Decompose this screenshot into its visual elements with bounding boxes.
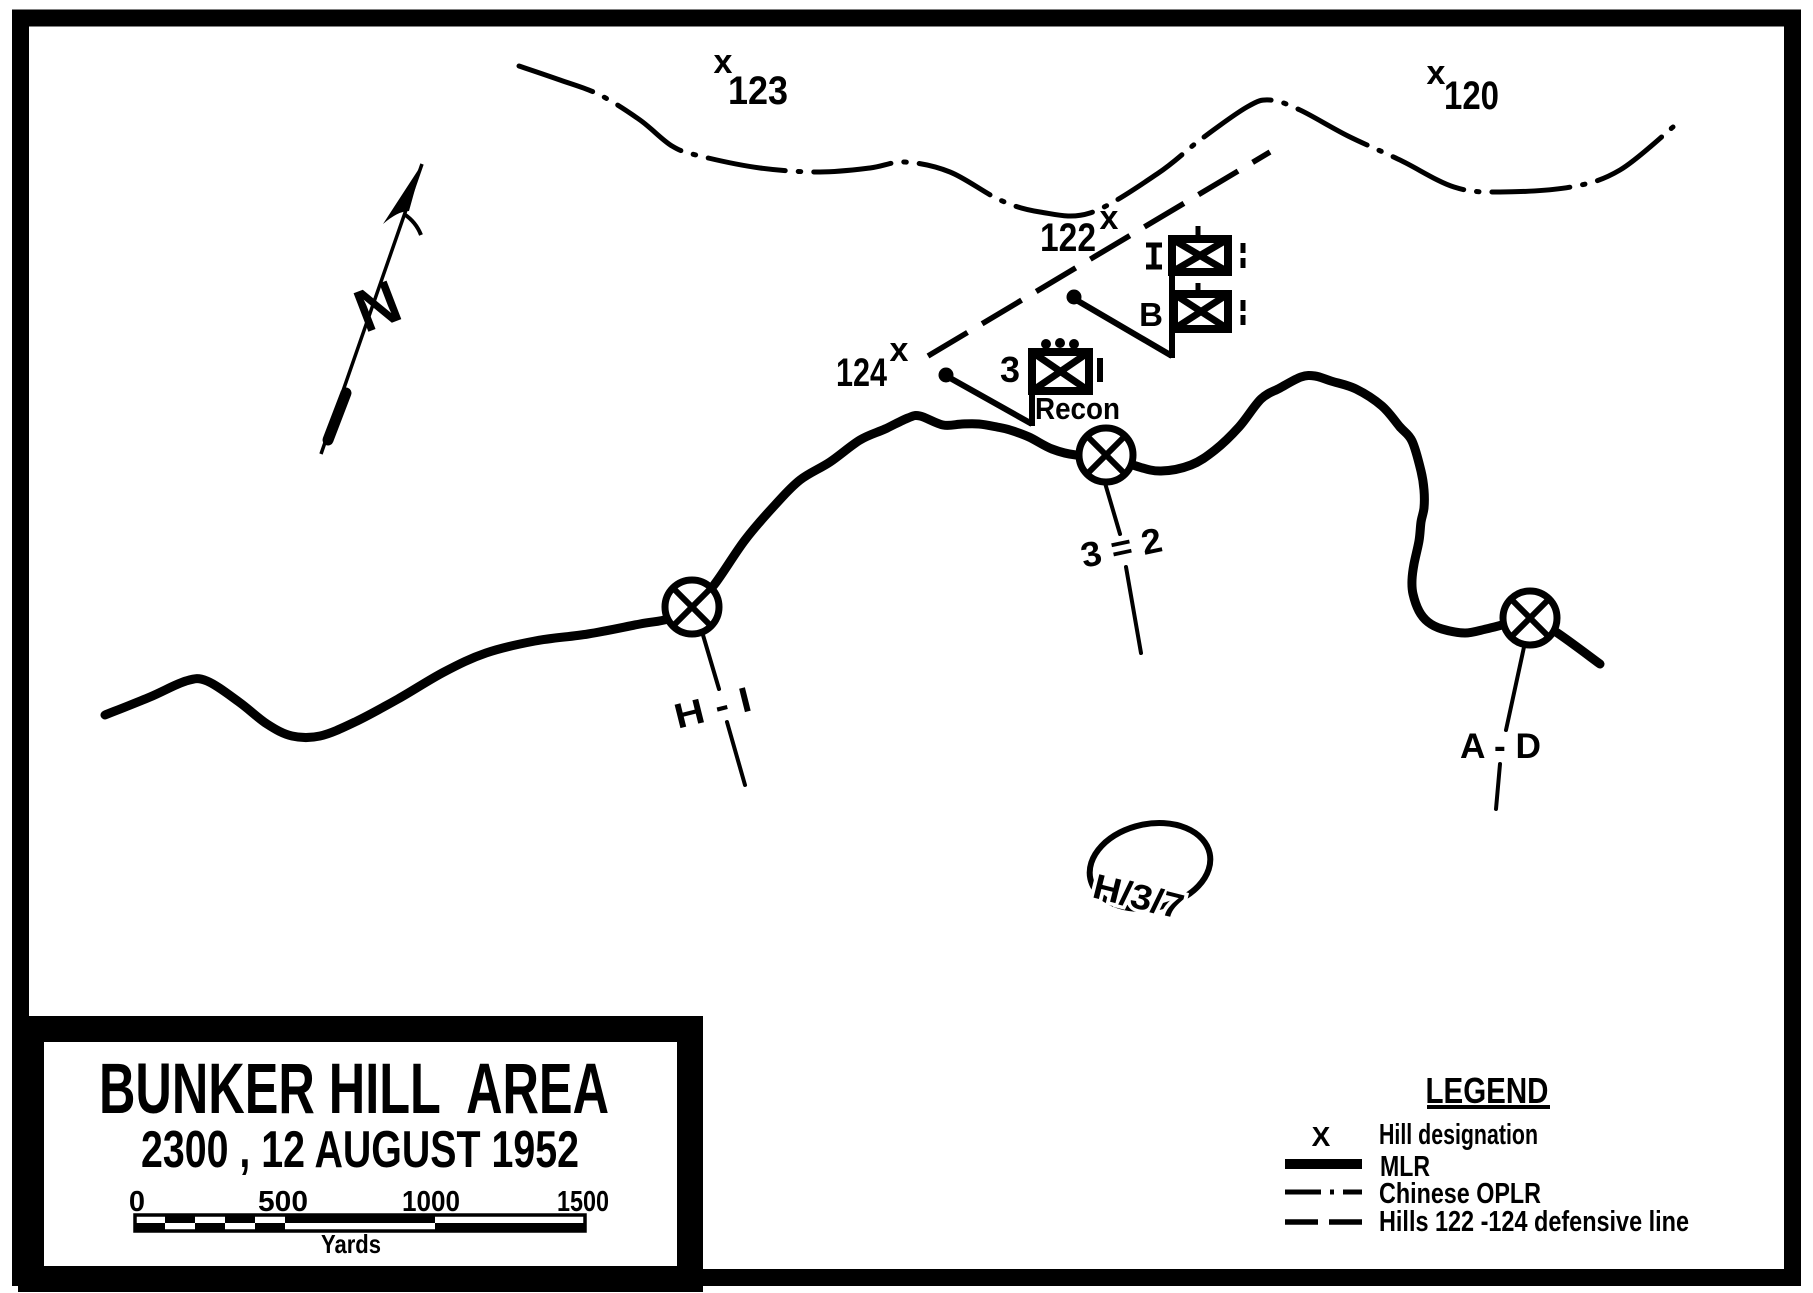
svg-text:B: B [1139,296,1163,333]
svg-text:x: x [1100,199,1119,237]
svg-text:122: 122 [1040,216,1096,260]
svg-text:Hills 122 -124 defensive line: Hills 122 -124 defensive line [1379,1206,1689,1238]
svg-text:1000: 1000 [402,1186,460,1218]
svg-text:A - D: A - D [1460,727,1541,766]
svg-text:x: x [890,331,909,369]
svg-text:Hill designation: Hill designation [1379,1119,1538,1151]
svg-text:1500: 1500 [557,1186,609,1218]
svg-text:x: x [1427,54,1446,92]
svg-text:LEGEND: LEGEND [1426,1070,1549,1111]
svg-text:500: 500 [258,1186,308,1218]
svg-text:Recon: Recon [1035,391,1120,426]
svg-text:2300 , 12 AUGUST 1952: 2300 , 12 AUGUST 1952 [141,1121,579,1179]
svg-text:0: 0 [129,1186,145,1218]
svg-text:124: 124 [836,351,888,395]
svg-text:123: 123 [728,69,788,113]
svg-text:BUNKER HILL AREA: BUNKER HILL AREA [99,1050,609,1129]
svg-text:Yards: Yards [321,1229,381,1259]
svg-text:3: 3 [1000,349,1020,390]
svg-text:X: X [1312,1121,1331,1152]
svg-text:120: 120 [1444,74,1499,118]
